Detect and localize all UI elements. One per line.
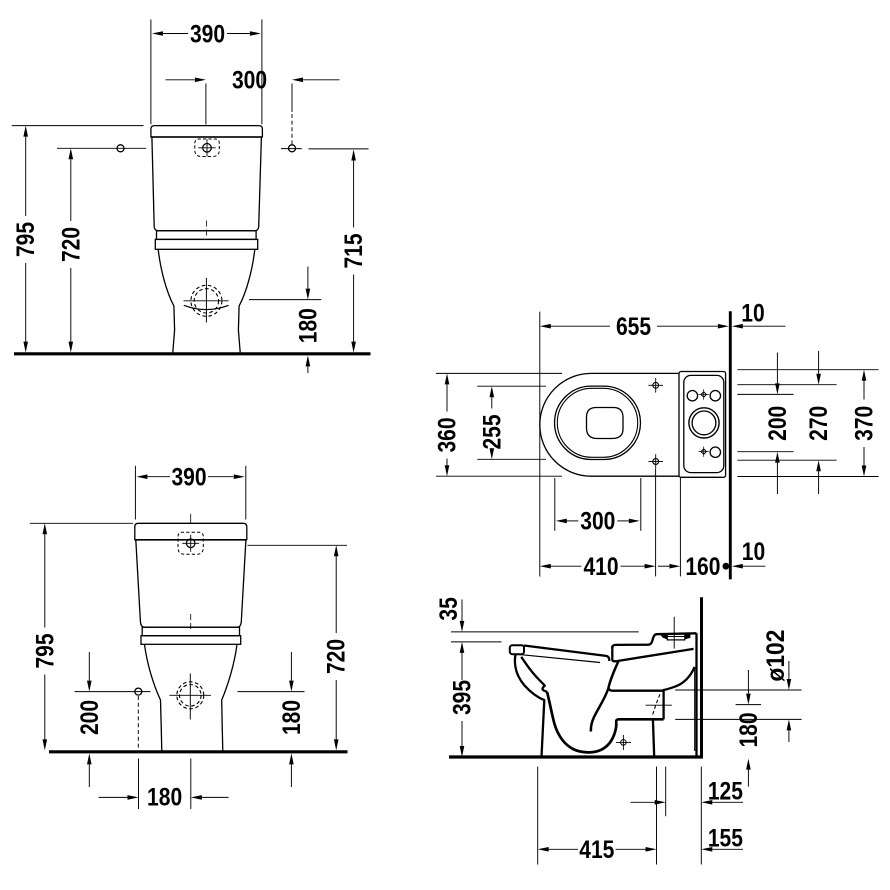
svg-text:415: 415 [579, 836, 614, 864]
svg-text:795: 795 [31, 633, 59, 668]
svg-text:10: 10 [741, 300, 764, 328]
svg-text:180: 180 [735, 712, 763, 747]
svg-text:720: 720 [323, 639, 351, 674]
svg-text:390: 390 [171, 464, 206, 492]
svg-text:655: 655 [616, 313, 651, 341]
svg-text:180: 180 [278, 700, 306, 735]
svg-text:160: 160 [685, 553, 720, 581]
svg-text:180: 180 [294, 308, 322, 343]
svg-text:10: 10 [742, 538, 765, 566]
svg-text:125: 125 [708, 778, 743, 806]
svg-text:300: 300 [232, 67, 267, 95]
svg-text:200: 200 [764, 406, 792, 441]
svg-text:155: 155 [708, 824, 743, 852]
svg-text:35: 35 [435, 597, 463, 620]
svg-text:720: 720 [57, 227, 85, 262]
svg-text:370: 370 [851, 406, 879, 441]
svg-text:410: 410 [583, 553, 618, 581]
svg-text:360: 360 [434, 417, 462, 452]
svg-text:180: 180 [147, 783, 182, 811]
svg-text:395: 395 [449, 680, 477, 715]
svg-text:795: 795 [12, 222, 40, 257]
svg-text:715: 715 [340, 233, 368, 268]
svg-text:390: 390 [190, 20, 225, 48]
svg-text:300: 300 [580, 508, 615, 536]
svg-text:ø102: ø102 [762, 630, 790, 682]
svg-text:270: 270 [805, 406, 833, 441]
svg-text:200: 200 [76, 700, 104, 735]
svg-text:255: 255 [478, 414, 506, 449]
